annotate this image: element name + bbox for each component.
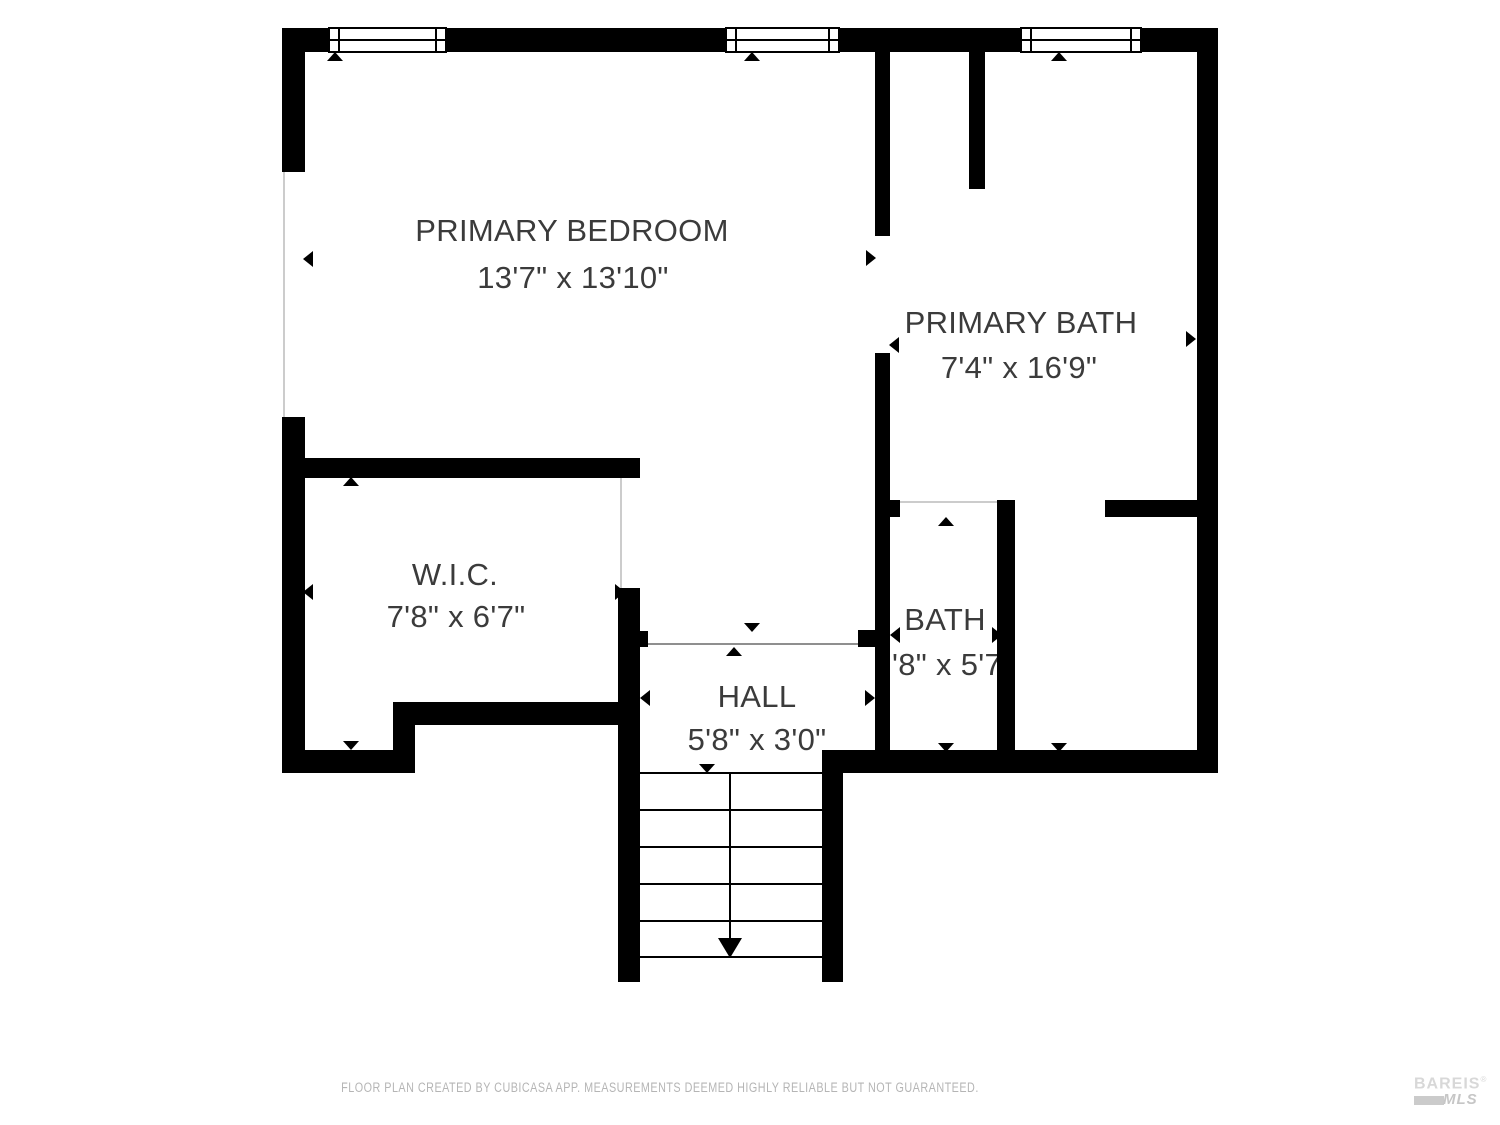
wall-hall-stub-left: [640, 631, 648, 647]
footer-disclaimer: FLOOR PLAN CREATED BY CUBICASA APP. MEAS…: [341, 1080, 979, 1095]
dim-arrow-hall-bottom: [699, 764, 715, 773]
logo-bar: [1414, 1096, 1444, 1105]
dim-arrow-bedroom-top: [744, 52, 760, 61]
window-frame-line: [1130, 29, 1132, 51]
wall-primary-bath-bottom: [1105, 500, 1197, 517]
room-dims-wic: 7'8" x 6'7": [387, 599, 526, 635]
dim-arrow-wic-top: [343, 477, 359, 486]
dim-arrow-primary-bath-right: [1186, 331, 1196, 347]
wall-hall-stub-right: [858, 630, 875, 647]
wall-stairs-right: [822, 773, 843, 982]
room-label-hall: HALL: [718, 679, 797, 715]
wall-wic-step: [393, 702, 415, 773]
window-midline: [1022, 39, 1140, 41]
dim-arrow-primary-bath-bottom: [1051, 743, 1067, 752]
window-midline: [727, 39, 838, 41]
logo-registered-icon: ®: [1480, 1075, 1486, 1084]
room-dims-primary-bedroom: 13'7" x 13'10": [477, 260, 668, 296]
stair-direction-line: [729, 773, 731, 939]
wall-bottom-right: [822, 750, 1218, 773]
dim-arrow-bath-right: [992, 627, 1002, 643]
wall-primary-bath-stub: [969, 52, 985, 189]
opening-line-bath-door: [888, 501, 997, 503]
window-icon-middle: [725, 27, 840, 53]
window-frame-line: [735, 29, 737, 51]
opening-line-left-exterior: [283, 172, 285, 417]
stair-step: [640, 809, 822, 811]
dim-arrow-hall-top: [726, 647, 742, 656]
dim-arrow-hall-right: [865, 690, 875, 706]
stair-step: [640, 920, 822, 922]
dim-arrow-primary-bath-left: [889, 337, 899, 353]
window-frame-line: [828, 29, 830, 51]
opening-line-hall: [640, 643, 875, 645]
dim-arrow-bedroom-left: [303, 251, 313, 267]
wall-bath-top-stub: [888, 500, 900, 517]
room-dims-hall: 5'8" x 3'0": [688, 722, 827, 758]
wall-bedroom-bath-lower: [875, 353, 890, 752]
dim-arrow-wic-bottom: [343, 741, 359, 750]
room-dims-bath: '8" x 5'7: [892, 647, 1002, 683]
dim-arrow-bedroom-top-left: [327, 52, 343, 61]
logo-sub: MLS: [1443, 1091, 1478, 1108]
stair-step: [640, 772, 822, 774]
dim-arrow-bath-bottom: [938, 743, 954, 752]
room-label-primary-bath: PRIMARY BATH: [905, 305, 1138, 341]
wall-left-exterior-upper: [282, 28, 305, 172]
wall-bedroom-bath-upper: [875, 52, 890, 236]
wall-wic-bottom: [393, 702, 640, 725]
dim-arrow-bedroom-bottom: [744, 623, 760, 632]
floor-plan-canvas: PRIMARY BEDROOM 13'7" x 13'10" PRIMARY B…: [0, 0, 1500, 1125]
window-frame-line: [338, 29, 340, 51]
dim-arrow-bath-left: [890, 627, 900, 643]
room-label-primary-bedroom: PRIMARY BEDROOM: [415, 213, 728, 249]
bareis-mls-logo: BAREIS® MLS: [1414, 1075, 1494, 1093]
stair-step: [640, 883, 822, 885]
opening-line-wic-door: [620, 477, 622, 588]
dim-arrow-bath-top: [938, 517, 954, 526]
room-label-wic: W.I.C.: [412, 557, 498, 593]
window-frame-line: [1030, 29, 1032, 51]
room-label-bath: BATH: [904, 602, 986, 638]
dim-arrow-primary-bath-top: [1051, 52, 1067, 61]
window-midline: [330, 39, 445, 41]
window-icon-right: [1020, 27, 1142, 53]
stair-direction-arrow-icon: [718, 938, 742, 958]
dim-arrow-wic-left: [303, 584, 313, 600]
logo-brand: BAREIS: [1414, 1075, 1480, 1092]
stair-step: [640, 846, 822, 848]
wall-bath-right: [997, 500, 1015, 752]
dim-arrow-bedroom-right: [866, 250, 876, 266]
window-frame-line: [435, 29, 437, 51]
window-icon-left: [328, 27, 447, 53]
dim-arrow-wic-right: [615, 584, 625, 600]
wall-hall-left: [618, 588, 640, 982]
wall-wic-top: [282, 458, 640, 478]
room-dims-primary-bath: 7'4" x 16'9": [941, 350, 1097, 386]
dim-arrow-hall-left: [640, 690, 650, 706]
wall-right-exterior: [1197, 28, 1218, 773]
